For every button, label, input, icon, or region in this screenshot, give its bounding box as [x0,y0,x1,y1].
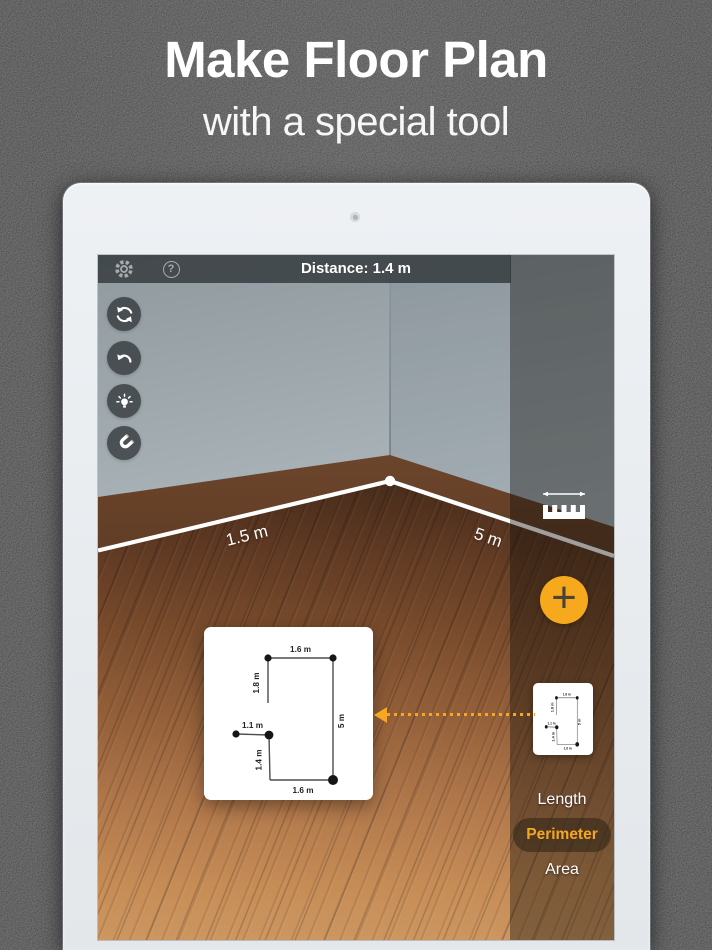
plan-label-left-mid: 1.1 m [242,721,263,730]
mode-selector: Length Perimeter Area [510,789,614,881]
tablet-camera [350,212,360,222]
floor-plan-thumbnail[interactable]: 1.6 m 1.8 m 1.1 m 1.4 m 1.6 m 5 m [533,683,593,755]
hero-title: Make Floor Plan [0,30,712,89]
plan-label-left-upper: 1.8 m [252,673,261,694]
plan-label-top: 1.6 m [290,645,311,654]
app-screen: 1.5 m 5 m + [98,255,614,940]
thumb-label-left-upper: 1.8 m [551,703,555,713]
thumb-label-bottom: 1.6 m [564,746,572,750]
hero-subtitle: with a special tool [0,100,712,145]
mode-area[interactable]: Area [545,859,579,881]
thumb-label-left-lower: 1.4 m [552,732,556,742]
thumb-label-right: 5 m [578,719,582,726]
reset-icon [115,305,134,324]
tablet-camera-lens [353,215,358,220]
undo-button[interactable] [107,341,141,375]
plan-label-right: 5 m [337,714,346,728]
ruler-icon [538,487,590,528]
undo-icon [115,349,134,368]
thumb-label-left-mid: 1.1 m [547,721,555,725]
reset-button[interactable] [107,297,141,331]
floor-plan-drawing: 1.6 m 1.8 m 1.1 m 1.4 m 1.6 m 5 m [204,627,373,800]
callout-arrow-line [387,713,535,716]
mode-length[interactable]: Length [538,789,587,811]
callout-arrow-head [374,707,387,723]
help-icon: ? [163,261,180,278]
flashlight-button[interactable] [107,384,141,418]
plus-icon: + [551,576,577,620]
plan-label-bottom: 1.6 m [293,786,314,795]
help-glyph: ? [168,264,175,275]
magnet-snap-button[interactable] [107,426,141,460]
settings-button[interactable] [113,258,135,280]
plan-label-left-lower: 1.4 m [255,750,264,771]
lightbulb-icon [115,392,134,411]
mode-perimeter[interactable]: Perimeter [513,818,611,852]
tablet-frame: 1.5 m 5 m + [63,183,650,950]
thumb-label-top: 1.6 m [563,692,571,696]
gear-icon [113,258,135,280]
floor-plan-card: 1.6 m 1.8 m 1.1 m 1.4 m 1.6 m 5 m [204,627,373,800]
add-measurement-button[interactable]: + [540,576,588,624]
mode-perimeter-label: Perimeter [526,826,598,844]
magnet-icon [115,434,134,453]
help-button[interactable]: ? [160,258,182,280]
